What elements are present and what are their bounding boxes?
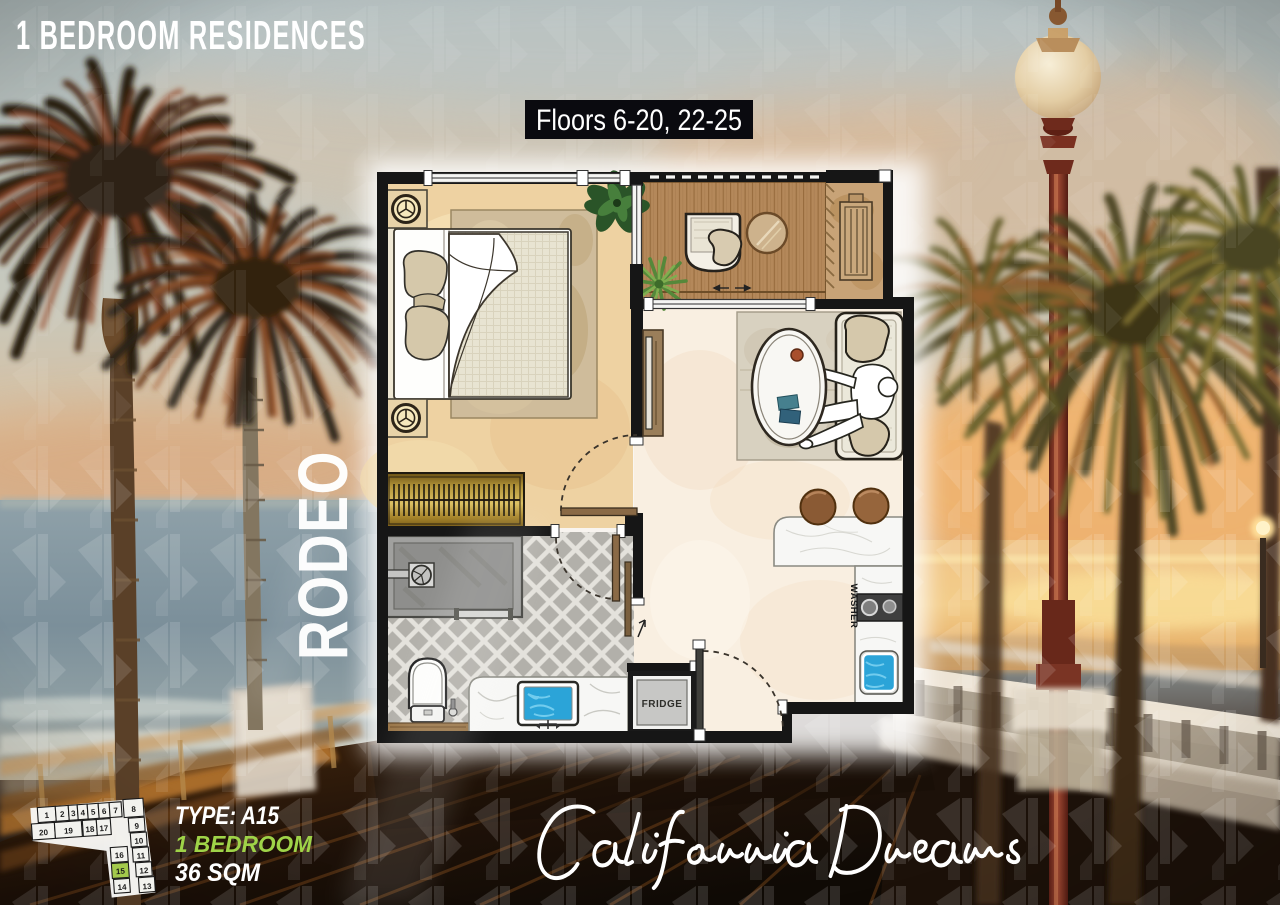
- svg-text:36 SQM: 36 SQM: [175, 859, 261, 887]
- svg-text:11: 11: [136, 851, 146, 861]
- svg-text:16: 16: [115, 851, 125, 861]
- svg-text:TYPE: A15: TYPE: A15: [175, 802, 280, 830]
- svg-text:12: 12: [139, 866, 149, 876]
- svg-text:Floors 6-20, 22-25: Floors 6-20, 22-25: [536, 104, 742, 137]
- svg-text:17: 17: [99, 824, 109, 834]
- svg-text:18: 18: [85, 825, 95, 835]
- svg-text:1 BEDROOM: 1 BEDROOM: [175, 831, 313, 857]
- svg-text:15: 15: [116, 867, 126, 877]
- svg-text:13: 13: [142, 882, 152, 892]
- svg-text:RODEO: RODEO: [284, 450, 362, 660]
- svg-text:19: 19: [64, 826, 74, 836]
- svg-text:1 BEDROOM RESIDENCES: 1 BEDROOM RESIDENCES: [16, 12, 366, 58]
- svg-text:14: 14: [117, 883, 127, 893]
- svg-text:10: 10: [134, 836, 144, 846]
- svg-text:20: 20: [39, 828, 49, 838]
